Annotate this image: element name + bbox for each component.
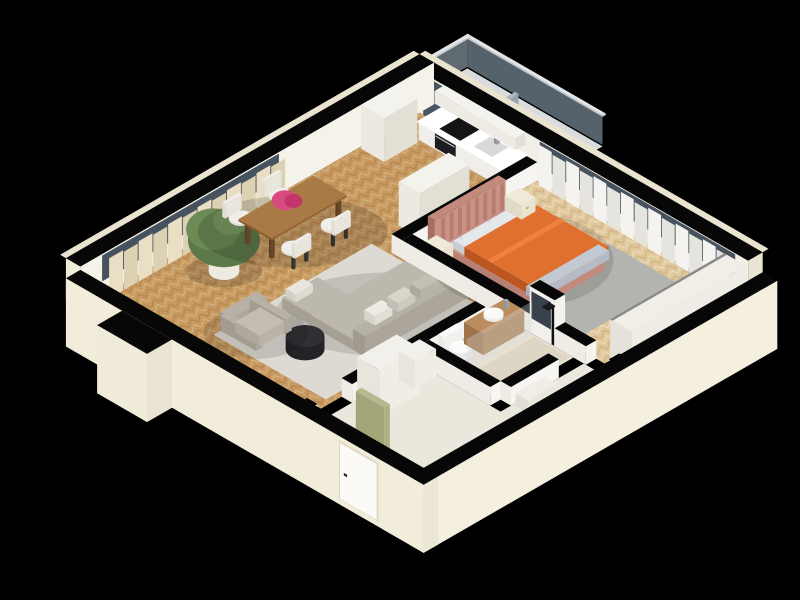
shower-column — [552, 305, 555, 346]
floor-plan-render: isometric-3d-apartment-floor-plan — [0, 0, 800, 600]
sink-faucet — [504, 299, 509, 310]
floor-plan-stage: isometric-3d-apartment-floor-plan — [0, 0, 800, 600]
flowers-pink-2 — [284, 194, 302, 208]
